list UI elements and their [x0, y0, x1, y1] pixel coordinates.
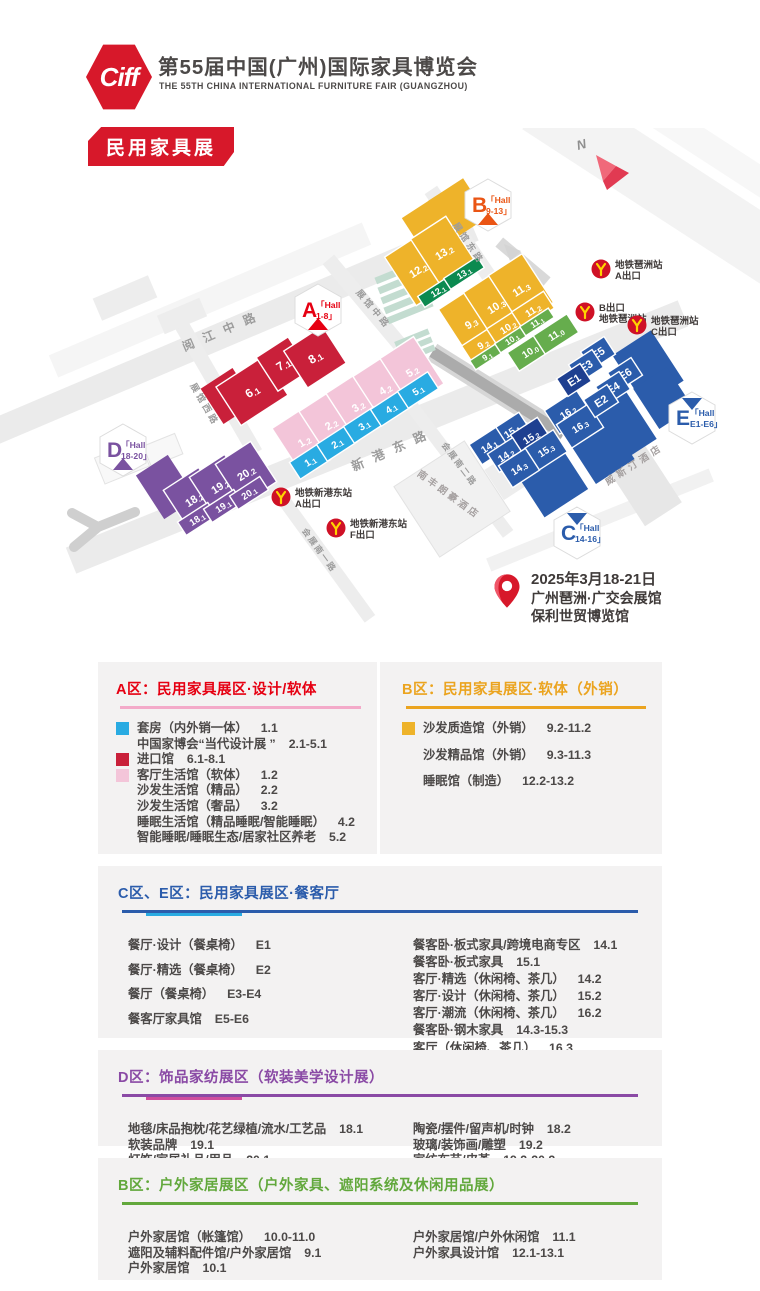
legend-item-text: 智能睡眠/睡眠生态/居家社区养老: [137, 830, 316, 846]
legend-item-halls: E2: [256, 963, 271, 979]
legend-section-title: A区：民用家具展区·设计/软体: [116, 678, 365, 699]
legend-item-halls: 9.2-11.2: [547, 721, 591, 737]
hall-badge-letter: C: [561, 522, 576, 545]
legend-rule-accent: [146, 1097, 242, 1100]
legend-item-halls: 19.1: [190, 1138, 214, 1154]
metro-icon: [576, 303, 595, 322]
legend-item-text: 进口馆: [137, 752, 174, 768]
legend-item-text: 客厅·设计（休闲椅、茶几）: [413, 989, 565, 1005]
legend-item-halls: 14.2: [578, 972, 602, 988]
legend-item-text: 睡眠生活馆（精品睡眠/智能睡眠）: [137, 815, 325, 831]
legend-item: 户外家居馆/户外休闲馆11.1: [413, 1230, 642, 1246]
legend-item-halls: 14.1: [593, 938, 617, 954]
hall-badge-line1: 「Hall: [121, 439, 145, 450]
legend-item-halls: 12.2-13.2: [522, 774, 574, 790]
ciff-logo-text: Ciff: [100, 62, 139, 93]
legend-item: 套房（内外销一体）1.1: [116, 721, 365, 737]
legend-item-text: 地毯/床品抱枕/花艺绿植/流水/工艺品: [128, 1122, 326, 1138]
legend-color-swatch: [116, 753, 129, 766]
legend-item: 餐客卧·板式家具15.1: [413, 955, 642, 971]
legend-rule-accent: [146, 913, 242, 916]
metro-station-pazhou-a: 地铁琶洲站A出口: [592, 259, 664, 282]
legend-item: 软装品牌19.1: [128, 1138, 413, 1154]
legend-item-halls: 1.2: [261, 768, 278, 784]
legend-item-text: 户外家居馆/户外休闲馆: [413, 1230, 539, 1246]
legend-section-title: C区、E区：民用家具展区·餐客厅: [118, 882, 642, 903]
legend-section-title: B区：户外家居展区（户外家具、遮阳系统及休闲用品展）: [118, 1174, 642, 1195]
legend-swatch-spacer: [116, 738, 129, 751]
legend-item: 餐厅（餐桌椅）E3-E4: [128, 987, 413, 1003]
legend-item: 客厅生活馆（软体）1.2: [116, 768, 365, 784]
legend-section-rule: [406, 706, 646, 709]
legend-item-halls: 4.2: [338, 815, 355, 831]
legend-item-text: 沙发质造馆（外销）: [423, 721, 534, 737]
hall-badge-line1: 「Hall: [316, 299, 340, 310]
hall-badge-line1: 「Hall: [486, 194, 510, 205]
legend-item-text: 户外家具设计馆: [413, 1246, 499, 1262]
legend-item-halls: 2.2: [261, 783, 278, 799]
legend-item: 客厅·精选（休闲椅、茶几）14.2: [413, 972, 642, 988]
legend-section-title: D区：饰品家纺展区（软装美学设计展）: [118, 1066, 642, 1087]
event-info: 2025年3月18-21日 广州琶洲·广交会展馆 保利世贸博览馆: [492, 571, 662, 625]
legend-item-halls: 10.0-11.0: [264, 1230, 315, 1246]
hall-badge-line2: 1-8」: [316, 311, 337, 321]
legend-item-halls: 3.2: [261, 799, 278, 815]
legend-item: 睡眠馆（制造）12.2-13.2: [402, 774, 650, 790]
legend-item: 客厅·潮流（休闲椅、茶几）16.2: [413, 1006, 642, 1022]
legend-color-swatch: [116, 769, 129, 782]
metro-icon: [628, 316, 647, 335]
legend-item: 户外家居馆10.1: [128, 1261, 413, 1277]
legend-item-halls: 18.2: [547, 1122, 571, 1138]
legend-section-rule: [122, 1202, 638, 1205]
hall-badge-line1: 「Hall: [690, 407, 714, 418]
legend-item-text: 遮阳及辅料配件馆/户外家居馆: [128, 1246, 291, 1262]
legend-item-text: 餐客卧·板式家具/跨境电商专区: [413, 938, 580, 954]
legend-item-halls: 15.1: [516, 955, 540, 971]
legend-item-text: 餐厅·精选（餐桌椅）: [128, 963, 243, 979]
legend-item-text: 餐客厅家具馆: [128, 1012, 202, 1028]
legend-item-halls: 2.1-5.1: [289, 737, 327, 753]
legend-section-rule: [122, 910, 638, 913]
legend-item-text: 陶瓷/摆件/留声机/时钟: [413, 1122, 534, 1138]
legend-item-halls: 15.2: [578, 989, 602, 1005]
legend-item-text: 软装品牌: [128, 1138, 177, 1154]
legend-item-text: 套房（内外销一体）: [137, 721, 248, 737]
legend-section-rule: [120, 706, 361, 709]
hall-badge-letter: A: [302, 299, 317, 322]
metro-icon: [592, 260, 611, 279]
location-pin-icon: [492, 571, 522, 611]
hall-badge-letter: D: [107, 439, 122, 462]
legend-item: 遮阳及辅料配件馆/户外家居馆9.1: [128, 1246, 413, 1262]
legend-swatch-spacer: [116, 800, 129, 813]
hall-badge-letter: B: [472, 194, 487, 217]
event-venue-2: 保利世贸博览馆: [531, 607, 662, 625]
legend-item-text: 餐厅（餐桌椅）: [128, 987, 214, 1003]
legend-item: 沙发生活馆（精品）2.2: [116, 783, 365, 799]
legend-item: 智能睡眠/睡眠生态/居家社区养老5.2: [116, 830, 365, 846]
legend-item: 陶瓷/摆件/留声机/时钟18.2: [413, 1122, 642, 1138]
legend-column: A区：民用家具展区·设计/软体套房（内外销一体）1.1中国家博会“当代设计展 ”…: [98, 662, 380, 854]
legend-item-text: 玻璃/装饰画/雕塑: [413, 1138, 506, 1154]
legend-section-rule: [122, 1094, 638, 1097]
legend-item-text: 中国家博会“当代设计展 ”: [137, 737, 276, 753]
legend-item-text: 客厅·潮流（休闲椅、茶几）: [413, 1006, 565, 1022]
legend-item: 沙发精品馆（外销）9.3-11.3: [402, 748, 650, 764]
legend-item-text: 沙发生活馆（奢品）: [137, 799, 248, 815]
venue-map: N 18.219.220.218.119.120.16.17.18.11.22.…: [0, 128, 760, 643]
legend-item: 地毯/床品抱枕/花艺绿植/流水/工艺品18.1: [128, 1122, 413, 1138]
hall-badge-line2: 18-20」: [121, 451, 152, 461]
page-title: 第55届中国(广州)国际家具博览会: [158, 50, 478, 80]
legend-color-swatch: [402, 722, 415, 735]
legend-item: 睡眠生活馆（精品睡眠/智能睡眠）4.2: [116, 815, 365, 831]
legend-item-halls: 9.1: [304, 1246, 321, 1262]
legend-section-1: A区：民用家具展区·设计/软体套房（内外销一体）1.1中国家博会“当代设计展 ”…: [98, 662, 662, 854]
hall-badge-line2: 9-13」: [486, 206, 512, 216]
legend-swatch-spacer: [116, 831, 129, 844]
legend-column: B区：民用家具展区·软体（外销）沙发质造馆（外销）9.2-11.2沙发精品馆（外…: [380, 662, 662, 854]
legend-item-halls: E1: [256, 938, 271, 954]
legend-item-text: 睡眠馆（制造）: [423, 774, 509, 790]
hall-badge-line2: E1-E6」: [690, 419, 722, 429]
legend-item-halls: 1.1: [261, 721, 278, 737]
legend-swatch-spacer: [116, 785, 129, 798]
event-date: 2025年3月18-21日: [531, 571, 662, 589]
legend-item: 餐客卧·板式家具/跨境电商专区14.1: [413, 938, 642, 954]
legend-item-halls: 12.1-13.1: [512, 1246, 564, 1262]
legend-item-text: 客厅·精选（休闲椅、茶几）: [413, 972, 565, 988]
legend-item-text: 沙发生活馆（精品）: [137, 783, 248, 799]
legend-item-text: 户外家居馆（帐篷馆）: [128, 1230, 251, 1246]
legend-item-halls: 18.1: [339, 1122, 363, 1138]
hall-badge-line1: 「Hall: [575, 522, 599, 533]
legend-item-text: 户外家居馆: [128, 1261, 190, 1277]
hall-badge-line2: 14-16」: [575, 534, 606, 544]
legend-item-halls: 5.2: [329, 830, 346, 846]
page-subtitle: THE 55TH CHINA INTERNATIONAL FURNITURE F…: [159, 81, 468, 91]
legend-item: 沙发质造馆（外销）9.2-11.2: [402, 721, 650, 737]
legend-item: 户外家居馆（帐篷馆）10.0-11.0: [128, 1230, 413, 1246]
metro-station-label: 地铁新港东站A出口: [295, 487, 353, 510]
metro-station-label: 地铁琶洲站A出口: [615, 259, 663, 282]
legend-item-text: 餐客卧·钢木家具: [413, 1023, 503, 1039]
legend-item: 客厅·设计（休闲椅、茶几）15.2: [413, 989, 642, 1005]
legend-color-swatch: [116, 722, 129, 735]
legend-item-halls: 10.1: [203, 1261, 227, 1277]
legend-item: 餐客厅家具馆E5-E6: [128, 1012, 413, 1028]
metro-station-label: 地铁琶洲站C出口: [651, 315, 699, 338]
legend-item-text: 餐客卧·板式家具: [413, 955, 503, 971]
legend-item: 户外家具设计馆12.1-13.1: [413, 1246, 642, 1262]
metro-station-label: 地铁新港东站F出口: [350, 518, 408, 541]
metro-icon: [272, 488, 291, 507]
metro-station-xingangdong-f: 地铁新港东站F出口: [327, 518, 408, 541]
legend-item-text: 沙发精品馆（外销）: [423, 748, 534, 764]
poster-page: Ciff 第55届中国(广州)国际家具博览会 THE 55TH CHINA IN…: [0, 0, 760, 1291]
legend-swatch-spacer: [116, 816, 129, 829]
legend-swatch-spacer: [402, 749, 415, 762]
legend-item-halls: 11.1: [552, 1230, 575, 1246]
legend-item-halls: 19.2: [519, 1138, 543, 1154]
metro-icon: [327, 519, 346, 538]
legend-item: 进口馆6.1-8.1: [116, 752, 365, 768]
legend-item: 餐厅·精选（餐桌椅）E2: [128, 963, 413, 979]
legend-item-halls: 14.3-15.3: [516, 1023, 568, 1039]
event-venue-1: 广州琶洲·广交会展馆: [531, 589, 662, 607]
legend-item: 餐厅·设计（餐桌椅）E1: [128, 938, 413, 954]
legend-swatch-spacer: [402, 775, 415, 788]
legend-item: 沙发生活馆（奢品）3.2: [116, 799, 365, 815]
hall-badge-letter: E: [676, 407, 690, 430]
legend-item-halls: E3-E4: [227, 987, 261, 1003]
legend-section-3: D区：饰品家纺展区（软装美学设计展）地毯/床品抱枕/花艺绿植/流水/工艺品18.…: [98, 1050, 662, 1146]
legend-item: 玻璃/装饰画/雕塑19.2: [413, 1138, 642, 1154]
legend-item-halls: E5-E6: [215, 1012, 249, 1028]
legend-item: 餐客卧·钢木家具14.3-15.3: [413, 1023, 642, 1039]
legend-item-text: 餐厅·设计（餐桌椅）: [128, 938, 243, 954]
legend-item-halls: 6.1-8.1: [187, 752, 225, 768]
legend-section-title: B区：民用家具展区·软体（外销）: [402, 678, 650, 699]
legend-section-4: B区：户外家居展区（户外家具、遮阳系统及休闲用品展）户外家居馆（帐篷馆）10.0…: [98, 1158, 662, 1280]
legend-item-halls: 9.3-11.3: [547, 748, 591, 764]
ciff-logo: Ciff: [86, 44, 152, 110]
legend-item: 中国家博会“当代设计展 ”2.1-5.1: [116, 737, 365, 753]
legend-section-2: C区、E区：民用家具展区·餐客厅餐厅·设计（餐桌椅）E1餐厅·精选（餐桌椅）E2…: [98, 866, 662, 1038]
legend-item-halls: 16.2: [578, 1006, 602, 1022]
legend-item-text: 客厅生活馆（软体）: [137, 768, 248, 784]
